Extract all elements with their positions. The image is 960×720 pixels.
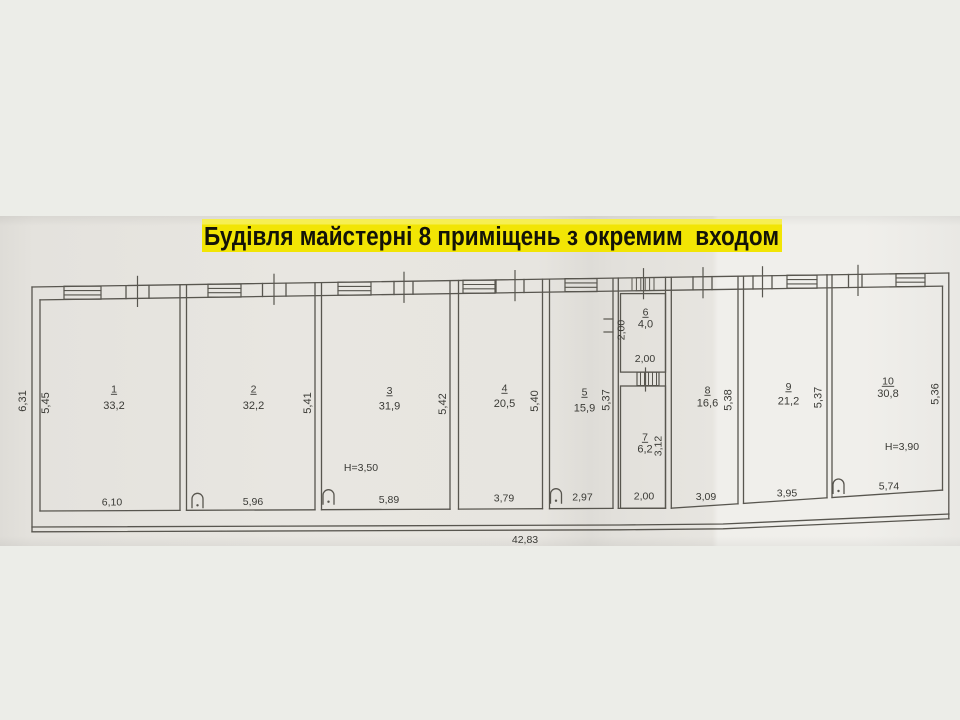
svg-text:4: 4 xyxy=(502,383,508,395)
svg-text:33,2: 33,2 xyxy=(103,400,124,412)
svg-text:2: 2 xyxy=(251,384,257,396)
svg-text:5: 5 xyxy=(582,387,588,399)
svg-text:5,37: 5,37 xyxy=(601,389,613,410)
svg-text:H=3,50: H=3,50 xyxy=(344,462,378,474)
svg-text:6,31: 6,31 xyxy=(17,390,29,411)
svg-text:10: 10 xyxy=(882,376,894,388)
svg-text:32,2: 32,2 xyxy=(243,400,264,412)
svg-text:3: 3 xyxy=(387,385,393,397)
svg-text:2,00: 2,00 xyxy=(616,320,628,341)
svg-text:1: 1 xyxy=(111,384,117,396)
svg-text:Будівля майстерні 8 приміщень: Будівля майстерні 8 приміщень з окремим … xyxy=(204,223,779,251)
svg-text:31,9: 31,9 xyxy=(379,401,400,413)
svg-text:H=3,90: H=3,90 xyxy=(885,441,919,453)
svg-text:3,12: 3,12 xyxy=(653,436,665,457)
svg-text:16,6: 16,6 xyxy=(697,398,718,410)
svg-text:6: 6 xyxy=(643,307,649,319)
svg-text:5,36: 5,36 xyxy=(930,383,942,404)
svg-text:8: 8 xyxy=(705,385,711,397)
svg-text:5,74: 5,74 xyxy=(879,481,900,493)
svg-text:5,89: 5,89 xyxy=(379,494,400,506)
svg-text:21,2: 21,2 xyxy=(778,396,799,408)
svg-text:6,2: 6,2 xyxy=(637,444,652,456)
svg-text:2,97: 2,97 xyxy=(572,492,593,504)
svg-text:4,0: 4,0 xyxy=(638,319,653,331)
svg-text:15,9: 15,9 xyxy=(574,403,595,415)
svg-text:3,79: 3,79 xyxy=(494,493,515,505)
svg-text:5,40: 5,40 xyxy=(529,390,541,411)
svg-text:2,00: 2,00 xyxy=(634,491,655,503)
svg-text:9: 9 xyxy=(786,381,792,393)
svg-text:3,95: 3,95 xyxy=(777,488,798,500)
svg-text:5,42: 5,42 xyxy=(437,393,449,414)
svg-text:3,09: 3,09 xyxy=(696,491,717,503)
svg-text:5,45: 5,45 xyxy=(40,392,52,413)
svg-text:5,96: 5,96 xyxy=(243,496,264,508)
svg-text:20,5: 20,5 xyxy=(494,398,515,410)
svg-text:42,83: 42,83 xyxy=(512,534,538,546)
svg-text:2,00: 2,00 xyxy=(635,353,656,365)
svg-text:30,8: 30,8 xyxy=(877,388,898,400)
svg-text:7: 7 xyxy=(642,432,648,444)
svg-text:5,37: 5,37 xyxy=(813,387,825,408)
svg-text:5,38: 5,38 xyxy=(723,389,735,410)
svg-text:5,41: 5,41 xyxy=(302,392,314,413)
svg-text:6,10: 6,10 xyxy=(102,497,123,509)
